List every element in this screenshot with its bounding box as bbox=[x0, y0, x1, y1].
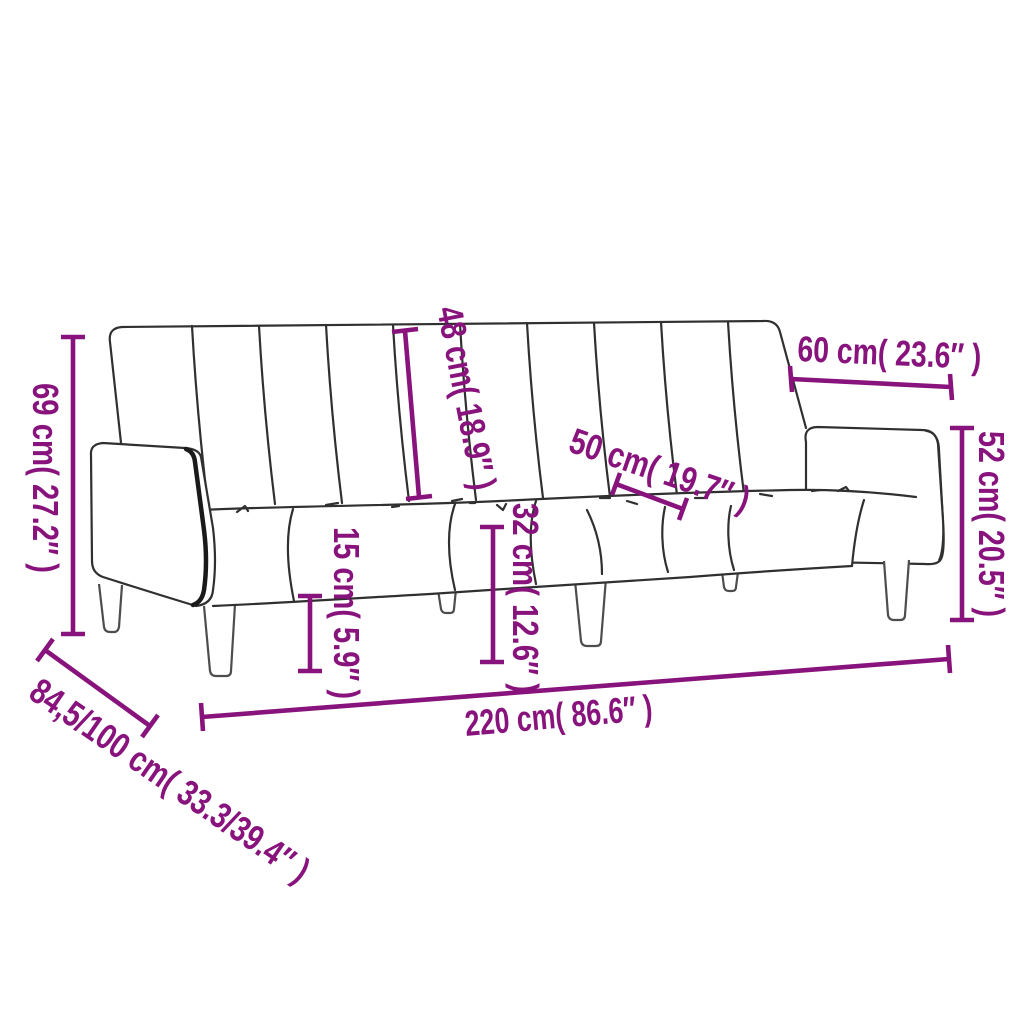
dimension-label-armrest-height: 52 cm( 20.5″ ) bbox=[971, 431, 1012, 617]
dimension-diagram-canvas: 69 cm( 27.2″ ) 48 cm( 18.9″ ) 60 cm( 23.… bbox=[0, 0, 1024, 1024]
dimension-line-clearance-height bbox=[298, 596, 322, 671]
dimension-line-armrest-height bbox=[950, 428, 974, 620]
dimension-overall-height: 69 cm( 27.2″ ) bbox=[25, 337, 85, 634]
dimension-overall-width: 220 cm( 86.6″ ) bbox=[201, 645, 950, 744]
armrest-leg bbox=[99, 584, 122, 632]
front-right-leg bbox=[884, 560, 909, 620]
front-left-leg bbox=[204, 604, 235, 676]
dimension-label-overall-height: 69 cm( 27.2″ ) bbox=[25, 383, 66, 573]
dimension-overall-depth: 84,5/100 cm( 33.3/39.4″ ) bbox=[22, 639, 317, 891]
dimension-armrest-height: 52 cm( 20.5″ ) bbox=[950, 428, 1012, 620]
dimension-label-armrest-length: 60 cm( 23.6″ ) bbox=[797, 328, 983, 377]
sofa-dimension-diagram: 69 cm( 27.2″ ) 48 cm( 18.9″ ) 60 cm( 23.… bbox=[0, 0, 1024, 1024]
dimension-label-clearance-height: 15 cm( 5.9″ ) bbox=[326, 527, 367, 699]
dimension-label-seat-height: 32 cm( 12.6″ ) bbox=[505, 503, 546, 693]
front-middle-leg bbox=[575, 578, 606, 646]
dimension-label-overall-depth: 84,5/100 cm( 33.3/39.4″ ) bbox=[22, 670, 317, 891]
dimension-armrest-length: 60 cm( 23.6″ ) bbox=[790, 328, 982, 400]
